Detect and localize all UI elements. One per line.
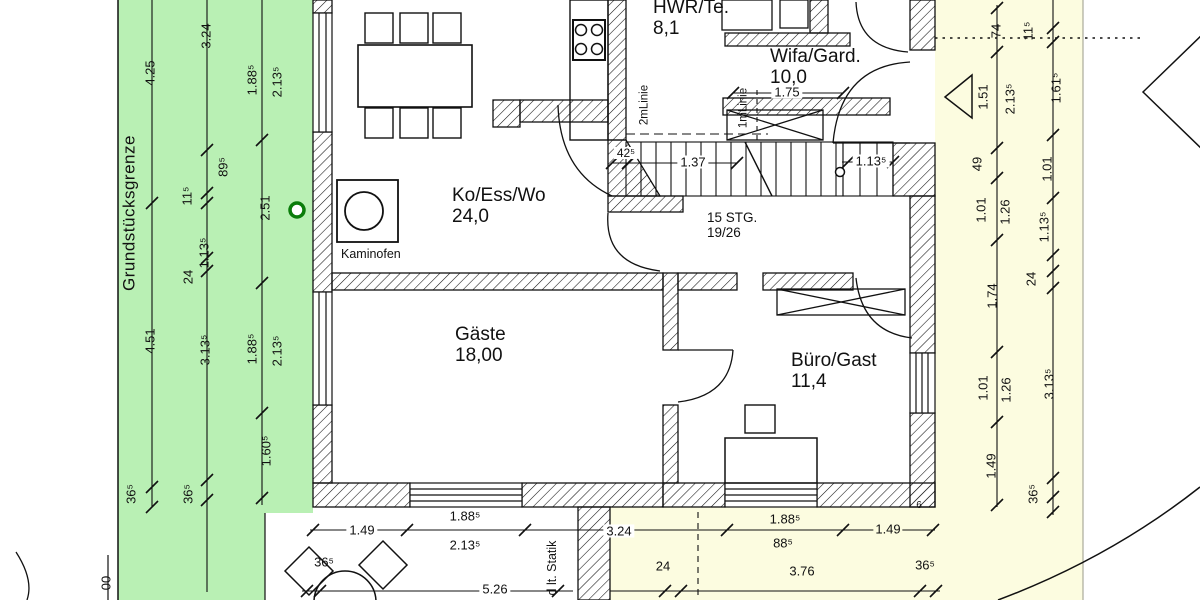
dim-label: 2.13⁵ [1004,84,1017,115]
corner-diamond [1143,32,1200,152]
dim-label: 2.13⁵ [271,336,284,367]
room-area: 18,00 [455,346,506,367]
dim-label: 1.61⁵ [1050,73,1063,104]
statik-wall-stub [578,507,610,600]
room-name: Ko/Ess/Wo [452,186,546,207]
property-boundary-label: Grundstücksgrenze [121,103,138,323]
dim-label: 3.24 [603,525,634,538]
stairs-count: 15 STG. [707,211,757,226]
dim-label: 24 [182,270,195,284]
dim-label: 74 [990,24,1003,38]
dim-label: 2.51 [259,195,272,220]
stairs-rise-run: 19/26 [707,226,757,241]
dim-label: 11⁵ [181,187,194,206]
dim-label: 1.49 [985,453,998,478]
dim-label: 89⁵ [217,157,230,177]
boundary-point-circle [290,203,304,217]
dim-label: 1.74 [986,283,999,308]
dim-label: 3.13⁵ [1043,369,1056,400]
partial-dimension: 00 [100,576,113,590]
dim-label: 1.88⁵ [246,334,259,365]
dim-label: 11⁵ [1022,22,1035,41]
dim-label: 24 [1025,272,1038,286]
dim-label: 24 [656,560,670,573]
room-area: 11,4 [791,372,877,393]
dim-label: 4.51 [144,328,157,353]
dim-label: 36⁵ [125,484,138,504]
room-label-gaeste: Gäste 18,00 [455,325,506,367]
dim-label: 2.13⁵ [450,539,481,552]
room-area: 8,1 [653,19,729,40]
dim-label: 3.24 [200,23,213,48]
dim-label: 1.13⁵ [853,155,890,168]
dim-label: 36⁵ [915,559,935,572]
room-label-koesswo: Ko/Ess/Wo 24,0 [452,186,546,228]
dim-label: 1.13⁵ [1038,212,1051,243]
one-meter-line-label: 1mLinie [738,88,750,128]
dim-label: 49 [971,157,984,171]
room-name: HWR/Te. [653,0,729,19]
dim-label: 1.13⁵ [198,238,211,269]
dim-label: 1.01 [1041,156,1054,181]
room-name: Wifa/Gard. [770,47,861,68]
dim-label: 1.01 [977,375,990,400]
dim-label: 1.26 [1000,377,1013,402]
room-label-buero: Büro/Gast 11,4 [791,351,877,393]
site-boundary-arc-left [16,552,29,600]
room-label-hwr: HWR/Te. 8,1 [653,0,729,40]
dim-label: 3.13⁵ [199,335,212,366]
kaminofen-text: Kaminofen [341,248,401,262]
room-area: 10,0 [770,68,861,89]
plant-diamond-2 [359,541,407,589]
room-name: Büro/Gast [791,351,877,372]
room-area: 24,0 [452,207,546,228]
room-name: Gäste [455,325,506,346]
stair-post [836,168,845,177]
floor-plan-drawing [0,0,1200,600]
dim-label: 1.88⁵ [246,65,259,96]
kaminofen-label: Kaminofen [341,248,401,262]
dim-label: 88⁵ [773,537,793,550]
dim-label: 5.26 [479,583,510,596]
dim-label: 1.88⁵ [450,510,481,523]
stairs-label: 15 STG. 19/26 [707,211,757,241]
dim-label: 36⁵ [1027,484,1040,504]
two-meter-line-label: 2mLinie [639,85,651,125]
dim-label: 1.88⁵ [770,513,801,526]
dim-label: 36⁵ [314,556,334,569]
dim-label: 42⁵ [614,147,638,159]
statik-note: d lt. Statik [546,541,559,596]
corner-mark: 6 [916,501,922,511]
plant-arc [314,571,376,600]
dim-label: 1.37 [677,156,708,169]
dim-label: 36⁵ [182,484,195,504]
dim-label: 1.01 [975,197,988,222]
dim-label: 1.26 [999,199,1012,224]
dim-label: 3.76 [789,565,814,578]
dim-label: 2.13⁵ [271,67,284,98]
dim-label: 1.51 [977,84,990,109]
dim-label: 1.49 [873,523,902,536]
room-label-wifa: Wifa/Gard. 10,0 [770,47,861,89]
dim-label: 1.60⁵ [260,436,273,467]
dim-label: 4.25 [144,60,157,85]
floor-plan-page: Grundstücksgrenze 00 d lt. Statik 6 4.25… [0,0,1200,600]
dim-label: 1.49 [346,524,377,537]
